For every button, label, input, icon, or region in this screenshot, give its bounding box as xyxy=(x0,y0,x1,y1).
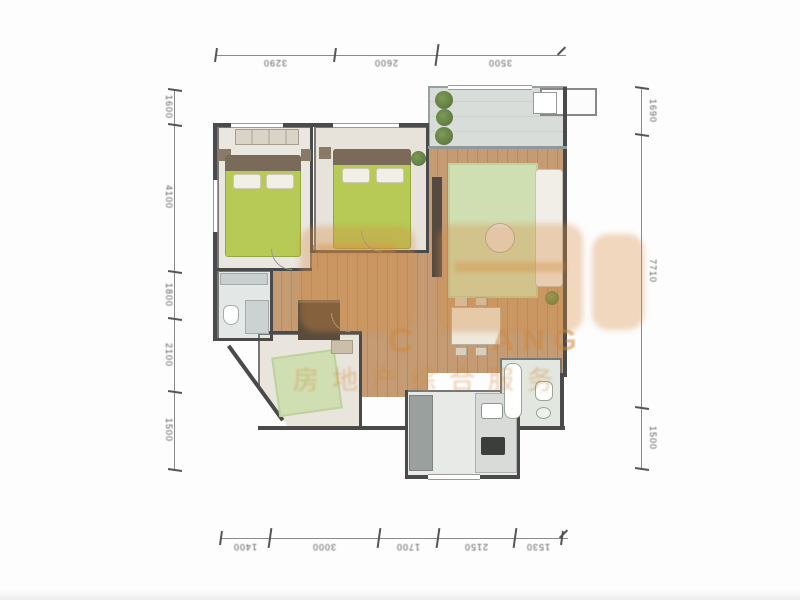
pillow xyxy=(376,168,404,183)
dim-tick xyxy=(635,467,649,471)
dim-left-1: 1600 xyxy=(162,85,174,129)
tv-cabinet xyxy=(432,177,442,277)
dim-right-2: 7710 xyxy=(646,249,658,293)
wall-bedroom2-right xyxy=(426,123,429,252)
dim-top-3: 3500 xyxy=(470,58,530,68)
headboard-bedroom1 xyxy=(225,155,301,171)
bathroom2-sink xyxy=(536,407,551,419)
kitchen-sink xyxy=(481,403,503,419)
wall-bottom-right xyxy=(518,426,565,430)
window-kitchen xyxy=(428,474,480,480)
balcony-plant-1 xyxy=(435,91,453,109)
dim-left-4: 2100 xyxy=(162,333,174,377)
floor-plan xyxy=(213,85,598,485)
dim-left-3: 1800 xyxy=(162,273,174,317)
watermark-glyph-3 xyxy=(592,234,644,330)
dim-right-1: 1690 xyxy=(646,89,658,133)
wall-bottom-left xyxy=(258,426,408,430)
wall-balcony-divider xyxy=(428,146,567,149)
dim-tick xyxy=(168,390,182,394)
dim-tick xyxy=(168,468,182,472)
wardrobe-bedroom1 xyxy=(235,129,299,145)
pillow xyxy=(266,174,294,189)
dim-line-top xyxy=(216,55,566,56)
dim-bottom-4: 2150 xyxy=(446,542,506,552)
dining-chair xyxy=(475,347,487,356)
wall-bedroom2-bottom xyxy=(313,250,429,253)
dim-left-2: 4100 xyxy=(162,175,174,219)
wall-bedrooms-divider xyxy=(310,123,313,253)
bedroom3-desk xyxy=(331,340,353,354)
window-left-wall xyxy=(213,180,218,232)
balcony-plant-3 xyxy=(435,127,453,145)
dim-top-2: 2600 xyxy=(356,58,416,68)
bed-bedroom1 xyxy=(225,155,301,257)
plant-bedroom2 xyxy=(411,151,426,166)
dining-table xyxy=(451,307,501,345)
floor-plan-image: 3290 2600 3500 1400 3000 1700 2150 1530 … xyxy=(0,0,800,600)
pillow xyxy=(233,174,261,189)
sofa xyxy=(535,169,563,287)
kitchen-stove xyxy=(481,437,505,455)
nightstand-bedroom1-right xyxy=(301,149,311,161)
dim-bottom-2: 3000 xyxy=(294,542,354,552)
page-bottom-shadow xyxy=(0,590,800,600)
wall-bedroom3-right xyxy=(359,333,362,428)
dim-top-1: 3290 xyxy=(245,58,305,68)
living-room-plant xyxy=(545,291,559,305)
dim-bottom-5: 1530 xyxy=(508,542,568,552)
dim-bottom-3: 1700 xyxy=(378,542,438,552)
dining-chair xyxy=(455,347,467,356)
dim-bottom-1: 1400 xyxy=(215,542,275,552)
shower xyxy=(245,300,269,334)
bathroom1-vanity xyxy=(220,273,268,285)
dim-line-left xyxy=(174,90,175,470)
window-bedroom1 xyxy=(231,123,283,128)
dim-left-5: 1500 xyxy=(162,408,174,452)
wall-bathroom1-bottom xyxy=(213,338,273,341)
coffee-table xyxy=(485,223,515,253)
wall-right xyxy=(563,87,567,377)
toilet xyxy=(223,305,239,325)
dining-chair xyxy=(475,297,487,306)
wall-bedroom1-bottom xyxy=(213,268,312,271)
window-balcony xyxy=(448,85,532,90)
dim-tick xyxy=(635,133,649,137)
wall-bathroom1-right xyxy=(270,270,273,340)
wall-right-lower xyxy=(560,373,564,430)
wall-kitchen-left xyxy=(405,390,408,478)
pillow xyxy=(342,168,370,183)
bathtub xyxy=(504,363,522,419)
dim-line-right xyxy=(641,88,642,470)
dim-tick xyxy=(168,317,182,321)
dim-right-3: 1500 xyxy=(646,416,658,460)
balcony-appliance xyxy=(533,92,557,114)
balcony-plant-2 xyxy=(436,109,453,126)
dining-chair xyxy=(455,297,467,306)
bedroom3-rug xyxy=(271,349,343,417)
headboard-bedroom2 xyxy=(333,149,411,165)
nightstand-bedroom2-left xyxy=(319,147,331,159)
window-bedroom2 xyxy=(333,123,399,128)
kitchen-counter-left xyxy=(409,395,433,471)
toilet-2 xyxy=(535,381,553,401)
dim-tick xyxy=(635,406,649,410)
